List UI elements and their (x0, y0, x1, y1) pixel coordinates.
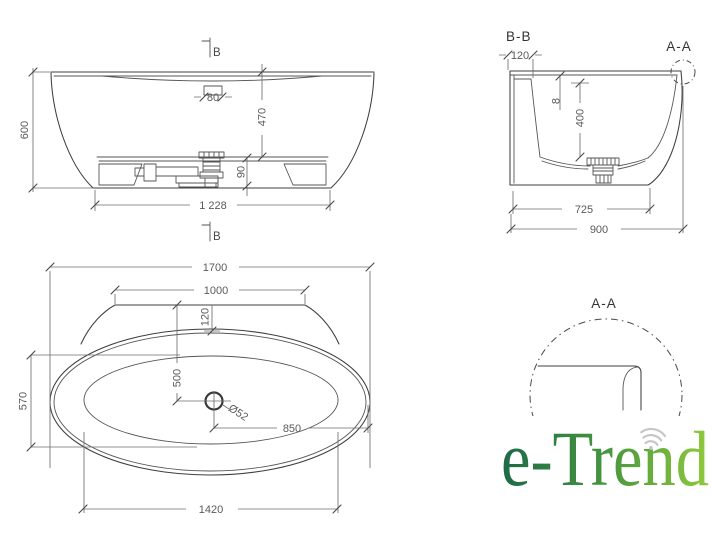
section-bb-view: B-B A-A 120 (499, 29, 695, 236)
svg-text:850: 850 (283, 423, 301, 435)
tub-plan-outline (50, 305, 370, 475)
dim-base-width-725: 725 (509, 188, 654, 216)
section-cut-mark-top-icon: B (202, 38, 221, 59)
dim-deck-width-1000: 1000 (111, 285, 309, 304)
svg-text:1700: 1700 (203, 262, 227, 274)
brand-logo-text: e-Trend (501, 415, 709, 502)
svg-text:470: 470 (257, 108, 269, 126)
brand-logo: e-Trend (501, 415, 709, 502)
svg-text:1000: 1000 (204, 285, 228, 297)
svg-text:400: 400 (575, 109, 587, 127)
dim-inner-width-570: 570 (18, 351, 198, 451)
svg-text:570: 570 (18, 392, 30, 410)
rim-profile (538, 366, 641, 410)
bathtub-technical-drawing: B B (0, 0, 712, 536)
section-cut-label-top: B (213, 47, 221, 59)
svg-text:120: 120 (200, 308, 212, 326)
svg-text:120: 120 (511, 50, 529, 62)
drain-fitting-section (587, 158, 619, 183)
dim-rim-edge-120: 120 (499, 50, 542, 78)
detail-callout: A-A (666, 39, 695, 84)
detail-callout-circle (671, 60, 695, 84)
technical-drawing-page: B B (0, 0, 712, 536)
dim-drain-diameter-label: Ø52 (226, 402, 250, 423)
svg-text:600: 600 (19, 121, 31, 139)
drain-crosshair-icon (199, 392, 231, 428)
detail-aa-title: A-A (591, 296, 617, 311)
tub-front-outline (51, 72, 374, 188)
svg-text:900: 900 (590, 224, 608, 236)
dim-base-height-90: 90 (236, 154, 252, 196)
dim-section-depth-400: 400 (571, 79, 589, 161)
dim-overflow-80: 80 (194, 92, 232, 104)
dim-inner-length-1420: 1420 (79, 432, 341, 516)
plan-view: 1700 1000 120 500 Ø52 (18, 262, 375, 516)
svg-text:8: 8 (551, 98, 563, 104)
section-cut-mark-bottom-icon: B (202, 222, 221, 243)
svg-text:500: 500 (172, 369, 184, 387)
dim-inner-depth-470: 470 (257, 64, 269, 161)
section-bb-title: B-B (506, 29, 532, 44)
svg-text:1420: 1420 (199, 504, 223, 516)
dim-drain-from-deck-500: 500 (172, 301, 200, 405)
svg-text:725: 725 (575, 204, 593, 216)
dim-rim-offset-120: 120 (200, 305, 221, 335)
svg-text:80: 80 (207, 92, 219, 104)
detail-callout-label: A-A (666, 39, 692, 54)
svg-text:1 228: 1 228 (199, 200, 227, 212)
dim-base-length-1228: 1 228 (91, 190, 334, 212)
section-cut-label-bottom: B (213, 231, 221, 243)
svg-text:90: 90 (236, 166, 248, 178)
front-elevation-view: B B (19, 38, 374, 243)
dim-wall-8: 8 (551, 72, 565, 110)
